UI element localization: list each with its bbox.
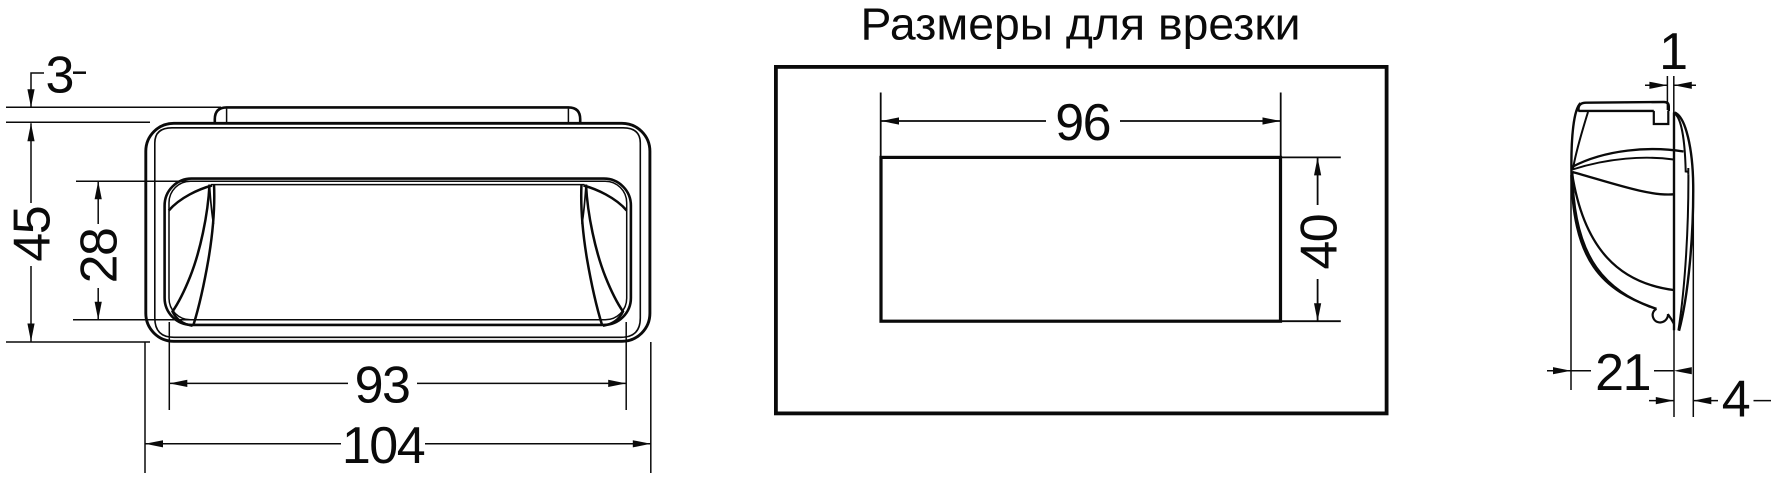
svg-text:45: 45 <box>4 207 62 262</box>
svg-text:40: 40 <box>1291 215 1349 270</box>
svg-text:93: 93 <box>355 357 410 415</box>
svg-text:1: 1 <box>1659 23 1686 81</box>
svg-text:104: 104 <box>342 417 425 475</box>
svg-text:28: 28 <box>71 229 129 284</box>
svg-text:Размеры для врезки: Размеры для врезки <box>861 0 1301 49</box>
svg-text:4: 4 <box>1722 371 1750 429</box>
svg-text:21: 21 <box>1595 344 1650 402</box>
svg-text:3: 3 <box>46 47 73 105</box>
svg-text:96: 96 <box>1055 94 1110 152</box>
